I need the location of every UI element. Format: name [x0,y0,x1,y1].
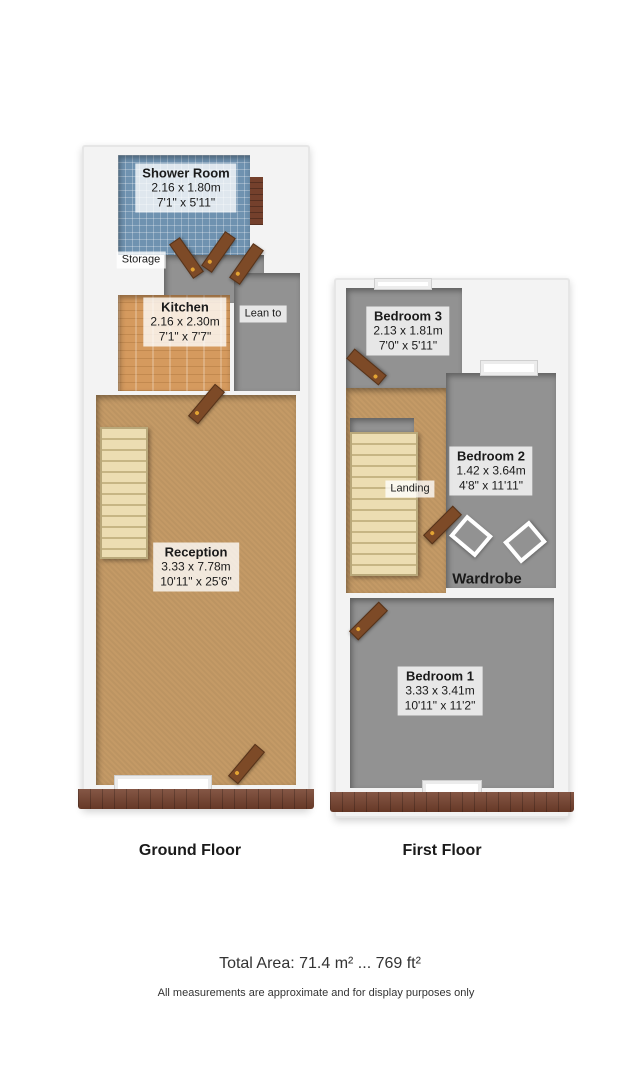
room-label-shower: Shower Room 2.16 x 1.80m 7'1" x 5'11" [135,164,236,213]
room-label-wardrobe: Wardrobe [445,570,528,589]
lean-to-floor [234,273,300,391]
first-floor-plan [334,278,570,818]
room-label-storage: Storage [117,252,166,269]
room-label-landing: Landing [385,481,434,498]
bedroom2-window [480,360,538,376]
ground-floor-caption: Ground Floor [139,842,241,860]
room-label-bedroom3: Bedroom 3 2.13 x 1.81m 7'0" x 5'11" [366,307,449,356]
stairwell-opening [350,418,414,432]
stairs [100,427,148,559]
stairs-first-floor [350,432,418,576]
room-label-lean-to: Lean to [240,306,287,323]
disclaimer-text: All measurements are approximate and for… [158,987,475,999]
room-label-bedroom1: Bedroom 1 3.33 x 3.41m 10'11" x 11'2" [398,667,483,716]
front-wall-brick [330,792,574,812]
chimney-brick [250,177,263,225]
room-label-reception: Reception 3.33 x 7.78m 10'11" x 25'6" [153,543,239,592]
floorplan-canvas: Shower Room 2.16 x 1.80m 7'1" x 5'11" St… [0,0,631,1080]
bedroom3-window [374,278,432,290]
room-label-kitchen: Kitchen 2.16 x 2.30m 7'1" x 7'7" [143,298,226,347]
room-label-bedroom2: Bedroom 2 1.42 x 3.64m 4'8" x 11'11" [449,447,532,496]
front-wall-brick [78,789,314,809]
total-area-text: Total Area: 71.4 m² ... 769 ft² [219,955,421,973]
ground-floor-plan [82,145,310,809]
first-floor-caption: First Floor [402,842,481,860]
